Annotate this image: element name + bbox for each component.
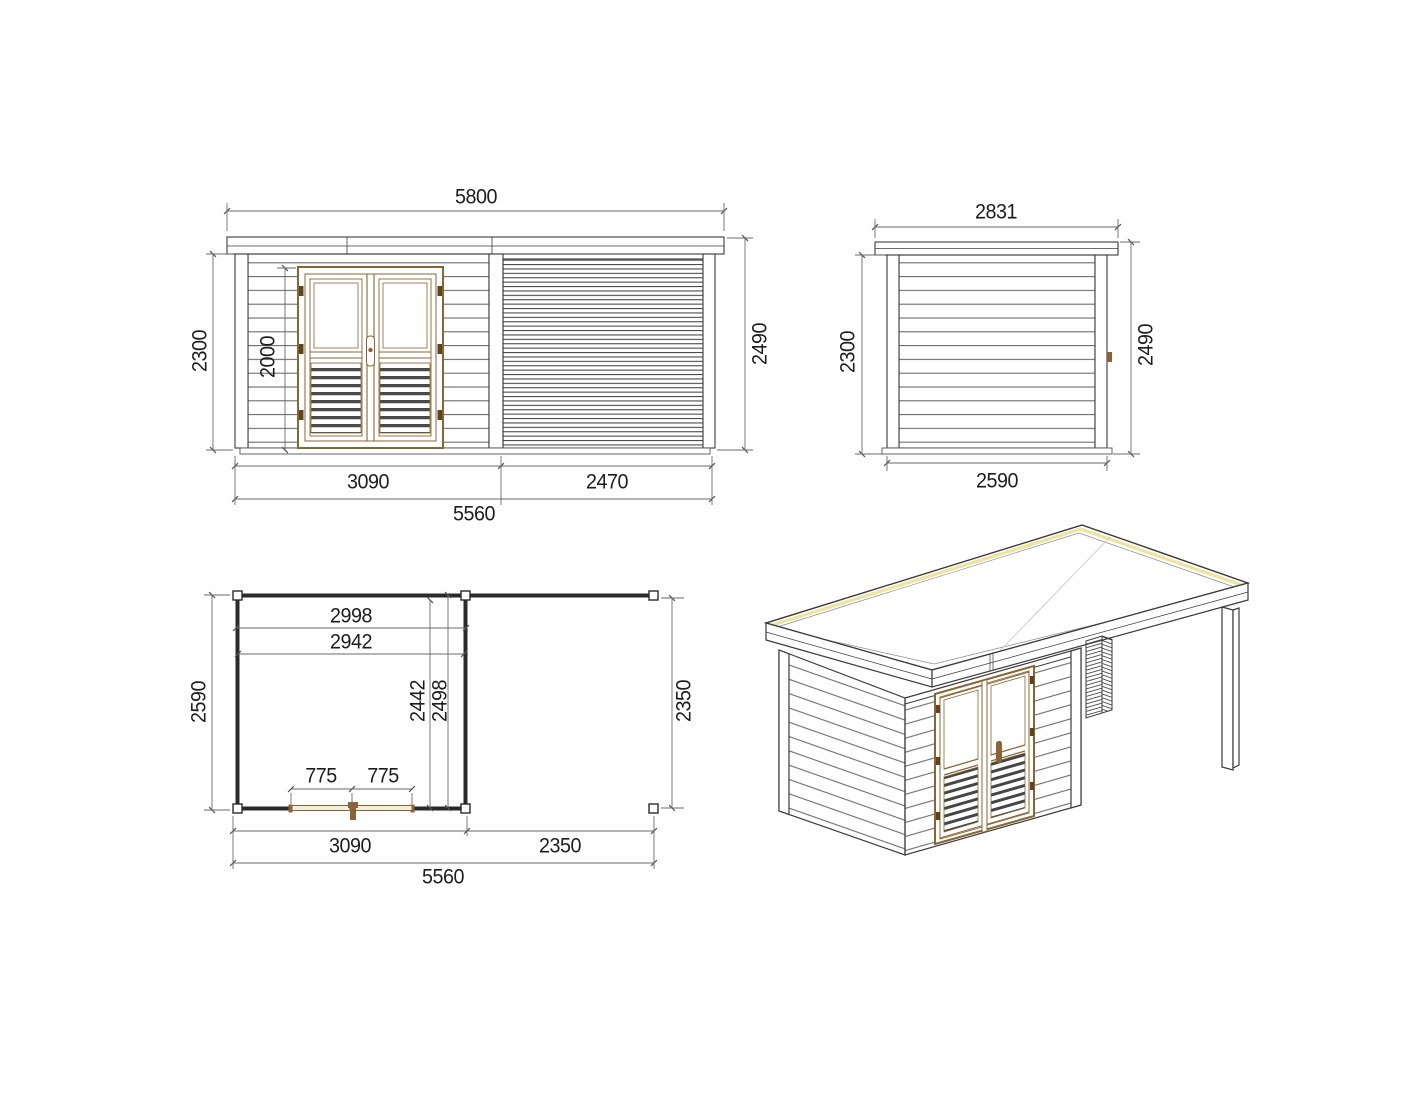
dim-plan-total-width: 5560 <box>422 867 464 888</box>
fe-door-handle <box>367 336 375 366</box>
dim-plan-pergola-width: 2350 <box>539 836 581 857</box>
dim-plan-inner-depth-a: 2442 <box>408 680 429 722</box>
se-left-post <box>887 255 899 448</box>
dim-side-base-depth: 2590 <box>976 471 1018 492</box>
dim-front-wall-height: 2300 <box>190 330 211 372</box>
front-elevation-drawing <box>206 203 753 505</box>
iso-left-corner-post <box>779 650 789 815</box>
dim-plan-depth-left: 2590 <box>189 681 210 723</box>
dim-side-roof-depth: 2831 <box>975 202 1017 223</box>
se-right-post <box>1095 255 1107 448</box>
dim-side-wall-height: 2300 <box>838 331 859 373</box>
iso-left-wall <box>779 650 905 855</box>
floor-plan-drawing <box>204 591 684 869</box>
iso-door-handle <box>996 741 1002 763</box>
drawing-canvas: 5800 2300 2000 2490 3090 2470 5560 2831 … <box>0 0 1422 1100</box>
fe-double-door <box>298 267 443 448</box>
fe-door-louver-right <box>380 363 430 433</box>
fe-roof-slab <box>227 237 724 254</box>
pl-door <box>289 802 414 820</box>
side-elevation-drawing <box>855 219 1140 471</box>
iso-right-corner-post <box>1071 648 1081 808</box>
pl-dimensions <box>204 595 684 869</box>
iso-door-louver-left <box>944 767 978 832</box>
fe-left-post <box>235 254 248 448</box>
dim-front-room-width: 3090 <box>347 472 389 493</box>
se-foundation <box>882 448 1112 454</box>
dim-front-total-width: 5560 <box>453 504 495 525</box>
dim-front-door-height: 2000 <box>258 336 279 378</box>
dim-plan-door-leaf-b: 775 <box>367 766 399 787</box>
dim-plan-room-width: 3090 <box>329 836 371 857</box>
se-door-handle-mark <box>1107 352 1112 362</box>
dim-front-roof-width: 5800 <box>455 187 497 208</box>
dim-plan-inner-depth-b: 2498 <box>430 680 451 722</box>
dim-side-total-height: 2490 <box>1136 324 1157 366</box>
dim-plan-inner-width-a: 2998 <box>330 606 372 627</box>
fe-louver-wall <box>503 259 703 448</box>
dim-front-total-height: 2490 <box>750 323 771 365</box>
fe-right-post <box>703 254 715 448</box>
dim-front-annex-width: 2470 <box>586 472 628 493</box>
dim-plan-door-leaf-a: 775 <box>305 766 337 787</box>
dim-plan-inner-width-b: 2942 <box>330 632 372 653</box>
dim-plan-depth-right: 2350 <box>674 680 695 722</box>
iso-pergola-post-side <box>1233 608 1239 768</box>
iso-louver-screen <box>1086 636 1102 718</box>
iso-door-louver-right <box>991 753 1025 818</box>
iso-double-door <box>935 666 1034 844</box>
fe-mid-post <box>489 254 503 448</box>
fe-door-louver-left <box>311 363 361 433</box>
iso-louver-screen-side <box>1102 636 1112 713</box>
iso-pergola-post <box>1222 607 1233 770</box>
iso-view-drawing <box>766 525 1248 855</box>
technical-drawing <box>0 0 1422 1100</box>
se-siding-wall <box>899 255 1095 448</box>
